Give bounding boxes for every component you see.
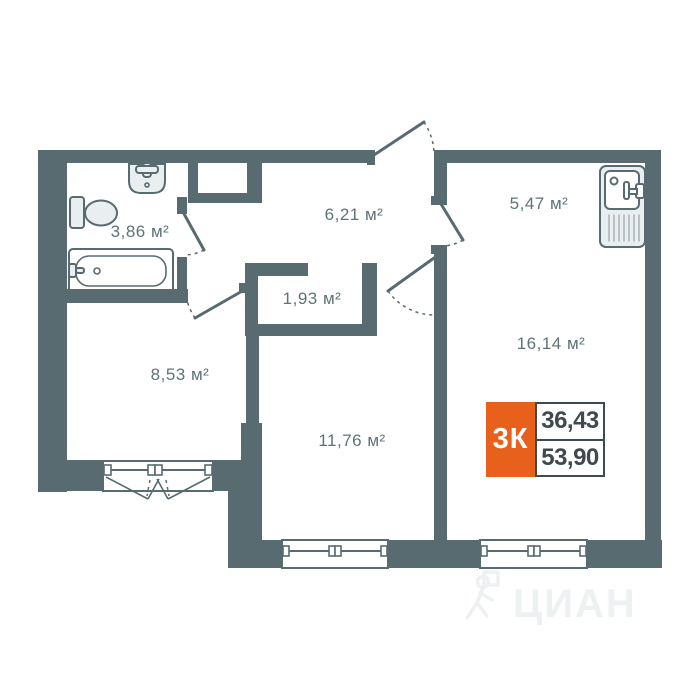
apartment-area-top: 36,43: [537, 404, 603, 441]
kitchen-sink-icon: [600, 166, 645, 247]
door-jamb: [431, 196, 447, 205]
wall-left: [38, 150, 67, 492]
room-label-room-left: 8,53 м²: [151, 365, 210, 385]
kitchen-door: [441, 204, 463, 246]
watermark-text: ЦИАН: [513, 585, 637, 623]
window-room-right: [480, 540, 587, 568]
apartment-areas: 36,43 53,90: [535, 402, 605, 477]
duct-shaft: [188, 153, 262, 203]
wall-bottom-1614-right: [587, 540, 662, 568]
wall-bottom-1176-right: [388, 540, 434, 568]
balcony-door-window: [103, 461, 213, 499]
room-label-room-right: 16,14 м²: [517, 334, 586, 354]
room-label-hallway: 6,21 м²: [325, 205, 384, 225]
watermark-person-icon: [462, 569, 506, 623]
bathtub-icon: [69, 249, 173, 293]
wall-bottom-853-right: [213, 460, 262, 491]
apartment-type-label: 3К: [486, 402, 535, 477]
bath-sink-icon: [129, 163, 165, 193]
wall-step: [228, 491, 262, 568]
wall-bath-stub-lower: [177, 257, 187, 290]
watermark: ЦИАН: [462, 569, 637, 623]
room-label-room-middle: 11,76 м²: [318, 431, 385, 451]
wall-hall-right-lower: [434, 250, 447, 540]
wall-right: [645, 150, 661, 568]
wall-divider-left-rooms-wide: [241, 423, 262, 460]
wall-closet-bottom: [245, 324, 377, 336]
wall-divider-left-rooms: [246, 336, 259, 423]
entry-jamb: [367, 150, 375, 165]
wall-bottom-1176-left: [262, 540, 282, 568]
apartment-badge: 3К 36,43 53,90: [486, 402, 605, 477]
room-left-door: [186, 290, 244, 318]
wall-bottom-853-left: [38, 460, 103, 491]
room-middle-door: [388, 258, 434, 315]
bathroom-door: [183, 212, 204, 255]
door-jamb: [431, 245, 447, 254]
wall-bottom-1614-left: [434, 540, 480, 568]
drainboard-ridges: [609, 215, 639, 241]
room-label-kitchen: 5,47 м²: [510, 194, 569, 214]
wall-closet-left: [245, 270, 258, 324]
room-label-bathroom: 3,86 м²: [111, 222, 170, 242]
entry-door: [374, 122, 434, 155]
window-room-middle: [282, 540, 388, 568]
room-label-closet: 1,93 м²: [283, 289, 342, 309]
apartment-area-bottom: 53,90: [537, 441, 603, 476]
wall-top-right: [434, 150, 661, 163]
wall-bath-bottom: [65, 289, 188, 303]
floor-plan: 3,86 м² 6,21 м² 5,47 м² 1,93 м² 8,53 м² …: [0, 0, 700, 700]
